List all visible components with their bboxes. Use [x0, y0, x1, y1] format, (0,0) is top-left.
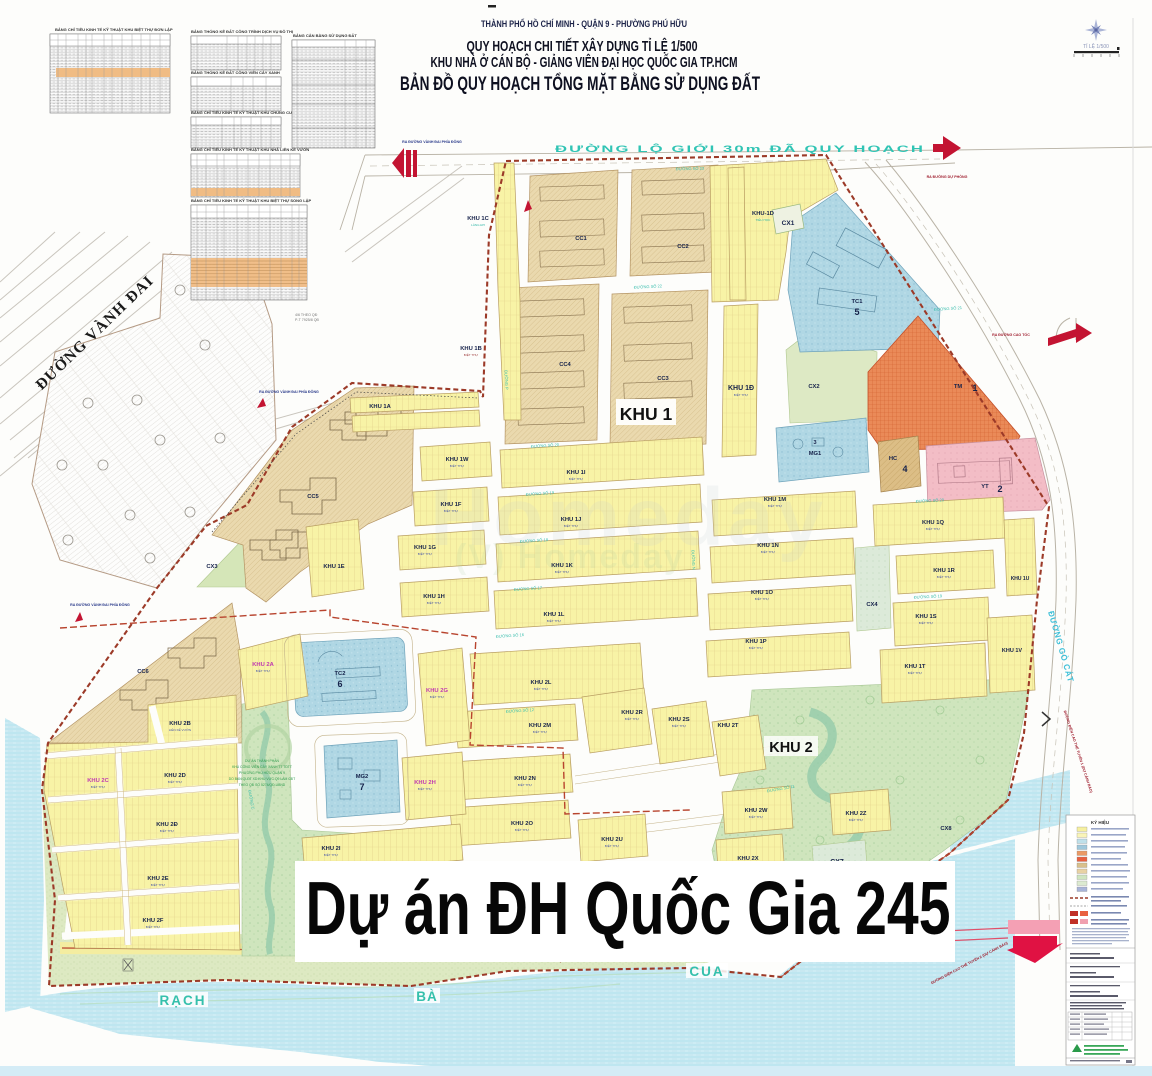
svg-text:KHU 1O: KHU 1O: [751, 590, 773, 596]
svg-text:BIỆT THỰ: BIỆT THỰ: [849, 817, 864, 822]
svg-text:ĐƯỜNG N: ĐƯỜNG N: [690, 550, 696, 570]
svg-text:RA ĐƯỜNG VÀNH ĐAI PHÍA ĐÔNG: RA ĐƯỜNG VÀNH ĐAI PHÍA ĐÔNG: [402, 139, 462, 144]
svg-text:KHU 1H: KHU 1H: [423, 594, 445, 600]
svg-text:PHƯỜNG PHÚ HỮU QUẬN 9: PHƯỜNG PHÚ HỮU QUẬN 9: [239, 770, 285, 775]
svg-text:KHU 2R: KHU 2R: [621, 710, 643, 716]
svg-text:RA ĐƯỜNG VÀNH ĐAI PHÍA ĐÔNG: RA ĐƯỜNG VÀNH ĐAI PHÍA ĐÔNG: [259, 389, 319, 394]
svg-text:TC2: TC2: [335, 671, 346, 677]
svg-text:CC2: CC2: [677, 244, 689, 250]
svg-text:LIÊN KẾ VƯỜN: LIÊN KẾ VƯỜN: [169, 727, 191, 732]
svg-text:BIỆT THỰ: BIỆT THỰ: [450, 463, 465, 468]
svg-text:BIỆT THỰ: BIỆT THỰ: [91, 784, 106, 789]
svg-text:BIỆT THỰ: BIỆT THỰ: [625, 716, 640, 721]
svg-text:KHU 1S: KHU 1S: [915, 614, 936, 620]
svg-text:TỈ LỆ 1/500: TỈ LỆ 1/500: [1083, 42, 1109, 50]
svg-text:BIỆT THỰ: BIỆT THỰ: [761, 549, 776, 554]
svg-text:BIỆT THỰ: BIỆT THỰ: [418, 786, 433, 791]
svg-text:KHU 2M: KHU 2M: [529, 723, 551, 729]
svg-text:BẢNG CHỈ TIÊU KINH TẾ KỸ THUẬT: BẢNG CHỈ TIÊU KINH TẾ KỸ THUẬT KHU CHUNG…: [191, 110, 293, 115]
svg-text:BIỆT THỰ: BIỆT THỰ: [564, 523, 579, 528]
svg-text:KHU 2E: KHU 2E: [147, 876, 168, 882]
svg-text:KHU 1A: KHU 1A: [369, 404, 391, 410]
svg-text:BIỆT THỰ: BIỆT THỰ: [569, 476, 584, 481]
svg-text:KHU 2L: KHU 2L: [531, 680, 552, 686]
svg-text:RẠCH: RẠCH: [160, 993, 207, 1008]
svg-text:BIỆT THỰ: BIỆT THỰ: [418, 551, 433, 556]
svg-text:BIỆT THỰ: BIỆT THỰ: [734, 392, 749, 397]
svg-text:1: 1: [972, 383, 977, 393]
svg-text:BIỆT THỰ: BIỆT THỰ: [151, 882, 166, 887]
svg-text:CC6: CC6: [137, 669, 149, 675]
svg-text:BIỆT THỰ: BIỆT THỰ: [534, 686, 549, 691]
svg-text:BIỆT THỰ: BIỆT THỰ: [937, 574, 952, 579]
svg-text:BẢNG THỐNG KÊ ĐẤT CÔNG TRÌNH D: BẢNG THỐNG KÊ ĐẤT CÔNG TRÌNH DỊCH VỤ ĐÔ …: [191, 29, 293, 34]
svg-text:BẢNG CHỈ TIÊU KINH TẾ KỸ THUẬT: BẢNG CHỈ TIÊU KINH TẾ KỸ THUẬT KHU BIỆT …: [55, 27, 173, 32]
svg-text:CC4: CC4: [559, 362, 571, 368]
svg-text:KHU 2U: KHU 2U: [601, 837, 623, 843]
svg-text:KHU 1K: KHU 1K: [551, 563, 573, 569]
svg-text:ĐƯỜNG SỐ 23: ĐƯỜNG SỐ 23: [676, 166, 705, 172]
svg-text:(V) Homeday: (V) Homeday: [455, 538, 685, 576]
svg-text:BIỆT THỰ: BIỆT THỰ: [518, 782, 533, 787]
svg-text:5: 5: [854, 307, 859, 317]
svg-text:BIỆT THỰ: BIỆT THỰ: [926, 526, 941, 531]
svg-text:KHU 2C: KHU 2C: [87, 778, 109, 784]
svg-text:KHU 2T: KHU 2T: [718, 723, 739, 729]
svg-text:BIỆT THỰ: BIỆT THỰ: [256, 668, 271, 673]
svg-text:CX8: CX8: [940, 826, 952, 832]
svg-text:BIỆT THỰ: BIỆT THỰ: [908, 670, 923, 675]
svg-text:KHU 2S: KHU 2S: [668, 717, 689, 723]
svg-text:DO BAN QLĐT XD KHU VỰC Q9 LÀM: DO BAN QLĐT XD KHU VỰC Q9 LÀM CĐT: [229, 777, 296, 781]
svg-text:QUY HOẠCH CHI TIẾT XÂY DỰNG TỈ: QUY HOẠCH CHI TIẾT XÂY DỰNG TỈ LỆ 1/500: [467, 37, 698, 55]
svg-text:TC1: TC1: [852, 299, 864, 305]
svg-text:4/6 THEO QĐ: 4/6 THEO QĐ: [295, 313, 318, 317]
svg-text:KHU-1D: KHU-1D: [752, 211, 774, 217]
svg-text:KHU 1W: KHU 1W: [446, 457, 469, 463]
svg-text:KHU 1U: KHU 1U: [1011, 576, 1030, 582]
svg-text:7: 7: [359, 782, 364, 792]
svg-text:KHU 1M: KHU 1M: [764, 497, 786, 503]
svg-text:DỰ ÁN THÀNH PHẦN: DỰ ÁN THÀNH PHẦN: [245, 759, 279, 763]
svg-text:CX4: CX4: [866, 602, 878, 608]
svg-text:THEO QĐ SỐ 5274/QĐ-UBND: THEO QĐ SỐ 5274/QĐ-UBND: [239, 782, 286, 787]
svg-text:CC3: CC3: [657, 376, 669, 382]
svg-text:KHU NHÀ Ở CÁN BỘ - GIẢNG VIÊN: KHU NHÀ Ở CÁN BỘ - GIẢNG VIÊN ĐẠI HỌC QU…: [431, 53, 738, 71]
svg-text:ĐƯỜNG LỘ GIỚI 30m ĐÃ QUY HOẠCH: ĐƯỜNG LỘ GIỚI 30m ĐÃ QUY HOẠCH: [555, 143, 925, 155]
svg-text:BIỆT THỰ: BIỆT THỰ: [515, 827, 530, 832]
svg-text:BIỆT THỰ: BIỆT THỰ: [430, 694, 445, 699]
svg-text:KHU 2I: KHU 2I: [321, 846, 340, 852]
svg-text:CX1: CX1: [782, 220, 795, 227]
svg-text:KHU CÔNG VIÊN CÂY XANH TT TDTT: KHU CÔNG VIÊN CÂY XANH TT TDTT: [232, 764, 292, 769]
svg-text:RA ĐƯỜNG VÀNH ĐAI PHÍA ĐÔNG: RA ĐƯỜNG VÀNH ĐAI PHÍA ĐÔNG: [70, 602, 130, 607]
svg-text:KHU 1J: KHU 1J: [561, 517, 582, 523]
svg-text:6: 6: [337, 679, 342, 689]
svg-text:CUA: CUA: [689, 964, 724, 979]
svg-text:KHU 1V: KHU 1V: [1002, 648, 1023, 654]
svg-text:TIỂU HỌC: TIỂU HỌC: [756, 217, 772, 222]
svg-text:BIỆT THỰ: BIỆT THỰ: [555, 569, 570, 574]
svg-text:KHU 1T: KHU 1T: [905, 664, 926, 670]
svg-text:BIỆT THỰ: BIỆT THỰ: [547, 618, 562, 623]
svg-text:BIỆT THỰ: BIỆT THỰ: [755, 596, 770, 601]
svg-text:KHU 1R: KHU 1R: [933, 568, 955, 574]
svg-text:4: 4: [902, 464, 907, 474]
svg-text:KHU 1E: KHU 1E: [323, 564, 344, 570]
svg-text:2: 2: [997, 484, 1002, 494]
svg-text:BIỆT THỰ: BIỆT THỰ: [749, 814, 764, 819]
svg-text:BÀ: BÀ: [416, 989, 438, 1004]
svg-text:BIỆT THỰ: BIỆT THỰ: [749, 645, 764, 650]
svg-text:BẢN ĐỒ QUY HOẠCH TỔNG MẶT BẰNG: BẢN ĐỒ QUY HOẠCH TỔNG MẶT BẰNG SỬ DỤNG Đ…: [400, 73, 760, 95]
svg-text:BIỆT THỰ: BIỆT THỰ: [146, 924, 161, 929]
svg-text:KHU 2Z: KHU 2Z: [846, 811, 867, 817]
svg-text:LÀNG ĐH: LÀNG ĐH: [471, 223, 485, 227]
svg-text:Dự án ĐH Quốc Gia 245: Dự án ĐH Quốc Gia 245: [306, 866, 951, 950]
svg-text:KHU 1Đ: KHU 1Đ: [728, 385, 754, 392]
svg-text:KHU 1C: KHU 1C: [467, 216, 489, 222]
svg-text:BIỆT THỰ: BIỆT THỰ: [160, 828, 175, 833]
svg-text:KHU 2: KHU 2: [769, 740, 813, 756]
svg-text:KHU 1N: KHU 1N: [757, 543, 779, 549]
svg-text:CX2: CX2: [808, 384, 819, 390]
svg-text:HC: HC: [889, 456, 898, 462]
svg-text:KHU 2H: KHU 2H: [414, 780, 436, 786]
svg-text:BẢNG CÂN BẰNG SỬ DỤNG ĐẤT: BẢNG CÂN BẰNG SỬ DỤNG ĐẤT: [293, 33, 357, 38]
svg-text:CC1: CC1: [575, 236, 587, 242]
svg-text:KHU 1L: KHU 1L: [544, 612, 565, 618]
svg-text:KHU 2Đ: KHU 2Đ: [156, 822, 178, 828]
svg-text:BIỆT THỰ: BIỆT THỰ: [427, 600, 442, 605]
svg-text:KHU 1I: KHU 1I: [566, 470, 585, 476]
svg-text:BIỆT THỰ: BIỆT THỰ: [768, 503, 783, 508]
svg-text:BIỆT THỰ: BIỆT THỰ: [324, 852, 339, 857]
svg-text:THÀNH PHỐ HỒ CHÍ MINH - QUẬN 9: THÀNH PHỐ HỒ CHÍ MINH - QUẬN 9 - PHƯỜNG …: [481, 18, 687, 30]
svg-text:P-T 7925/8 QĐ: P-T 7925/8 QĐ: [295, 318, 320, 322]
svg-text:MG2: MG2: [356, 774, 369, 780]
svg-text:KHU 2N: KHU 2N: [514, 776, 536, 782]
svg-text:RA ĐƯỜNG DỰ PHÒNG: RA ĐƯỜNG DỰ PHÒNG: [927, 174, 968, 179]
svg-text:BIỆT THỰ: BIỆT THỰ: [919, 620, 934, 625]
svg-text:KHU 1: KHU 1: [620, 404, 673, 424]
svg-text:MG1: MG1: [809, 451, 822, 457]
svg-text:BIỆT THỰ: BIỆT THỰ: [533, 729, 548, 734]
svg-text:KHU 1Q: KHU 1Q: [922, 520, 944, 526]
svg-text:KÝ HIỆU: KÝ HIỆU: [1091, 818, 1109, 825]
svg-text:CC5: CC5: [307, 494, 319, 500]
svg-text:KHU 2G: KHU 2G: [426, 688, 448, 694]
svg-text:KHU 1G: KHU 1G: [414, 545, 436, 551]
svg-text:BẢNG CHỈ TIÊU KINH TẾ KỸ THUẬT: BẢNG CHỈ TIÊU KINH TẾ KỸ THUẬT KHU NHÀ L…: [191, 147, 309, 152]
svg-text:BIỆT THỰ: BIỆT THỰ: [464, 352, 479, 357]
svg-text:KHU 2F: KHU 2F: [143, 918, 164, 924]
svg-text:KHU 2O: KHU 2O: [511, 821, 533, 827]
svg-text:KHU 2A: KHU 2A: [252, 662, 274, 668]
svg-text:YT: YT: [981, 484, 989, 490]
svg-text:BẢNG CHỈ TIÊU KINH TẾ KỸ THUẬT: BẢNG CHỈ TIÊU KINH TẾ KỸ THUẬT KHU BIỆT …: [191, 198, 312, 203]
svg-text:KHU 2B: KHU 2B: [169, 721, 191, 727]
svg-text:KHU 1P: KHU 1P: [745, 639, 766, 645]
svg-text:KHU 1F: KHU 1F: [441, 502, 462, 508]
svg-text:KHU 2D: KHU 2D: [164, 773, 186, 779]
svg-text:BIỆT THỰ: BIỆT THỰ: [444, 508, 459, 513]
svg-text:BIỆT THỰ: BIỆT THỰ: [168, 779, 183, 784]
svg-text:CX3: CX3: [206, 564, 218, 570]
svg-text:KHU 2W: KHU 2W: [745, 808, 768, 814]
svg-text:BẢNG THỐNG KÊ ĐẤT CÔNG VIÊN CÂ: BẢNG THỐNG KÊ ĐẤT CÔNG VIÊN CÂY XANH: [191, 70, 280, 75]
svg-text:BIỆT THỰ: BIỆT THỰ: [605, 843, 620, 848]
svg-text:TM: TM: [954, 384, 963, 390]
svg-text:ĐƯỜNG P: ĐƯỜNG P: [503, 370, 509, 390]
svg-text:BIỆT THỰ: BIỆT THỰ: [672, 723, 687, 728]
svg-text:RA ĐƯỜNG CAO TỐC: RA ĐƯỜNG CAO TỐC: [992, 332, 1030, 337]
svg-text:KHU 1B: KHU 1B: [460, 346, 482, 352]
